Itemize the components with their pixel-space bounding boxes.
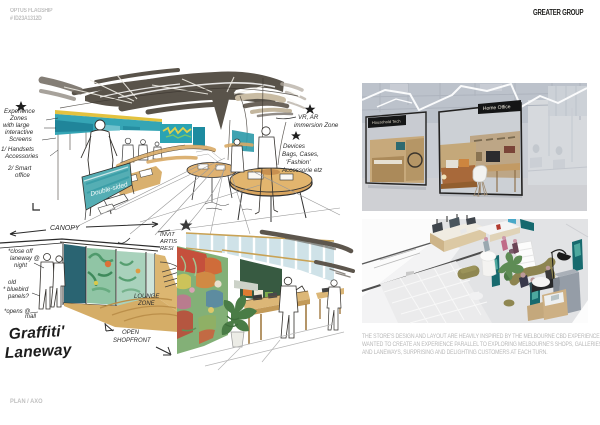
svg-text:Accessorie etz: Accessorie etz	[281, 167, 323, 174]
svg-text:panels?: panels?	[7, 294, 30, 300]
svg-text:Laneway: Laneway	[4, 341, 73, 362]
svg-text:immersion Zone: immersion Zone	[294, 122, 339, 129]
svg-text:Accessories: Accessories	[4, 153, 38, 160]
svg-text:2/ Smart: 2/ Smart	[7, 165, 32, 172]
svg-text:Screens: Screens	[9, 136, 32, 143]
svg-text:VR, AR: VR, AR	[298, 114, 319, 121]
svg-text:* bluebird: * bluebird	[3, 287, 29, 293]
svg-text:interactive: interactive	[5, 129, 34, 136]
svg-text:OPEN: OPEN	[122, 330, 140, 336]
svg-text:CANOPY: CANOPY	[50, 225, 81, 232]
svg-text:with large: with large	[3, 122, 30, 129]
svg-text:Devices: Devices	[283, 143, 305, 150]
svg-text:'Fashion': 'Fashion'	[286, 159, 311, 166]
svg-text:laneway @: laneway @	[10, 256, 40, 262]
svg-text:old: old	[8, 280, 17, 286]
svg-text:night: night	[14, 263, 27, 269]
svg-text:LOUNGE: LOUNGE	[134, 294, 160, 300]
svg-text:RESI: RESI	[160, 246, 174, 252]
svg-text:Zones: Zones	[9, 115, 27, 122]
svg-text:1/ Handsets: 1/ Handsets	[1, 146, 34, 153]
svg-text:Bags, Cases,: Bags, Cases,	[282, 151, 319, 158]
svg-text:Graffiti': Graffiti'	[8, 323, 66, 343]
svg-text:ZONE: ZONE	[137, 301, 156, 307]
svg-text:INVIT: INVIT	[160, 232, 175, 238]
svg-text:office: office	[15, 172, 30, 179]
svg-text:SHOPFRONT: SHOPFRONT	[113, 338, 152, 344]
svg-text:*close off: *close off	[8, 249, 34, 255]
svg-text:mall: mall	[25, 314, 37, 320]
svg-text:Experience: Experience	[4, 108, 36, 115]
svg-text:ARTIS: ARTIS	[159, 239, 177, 245]
